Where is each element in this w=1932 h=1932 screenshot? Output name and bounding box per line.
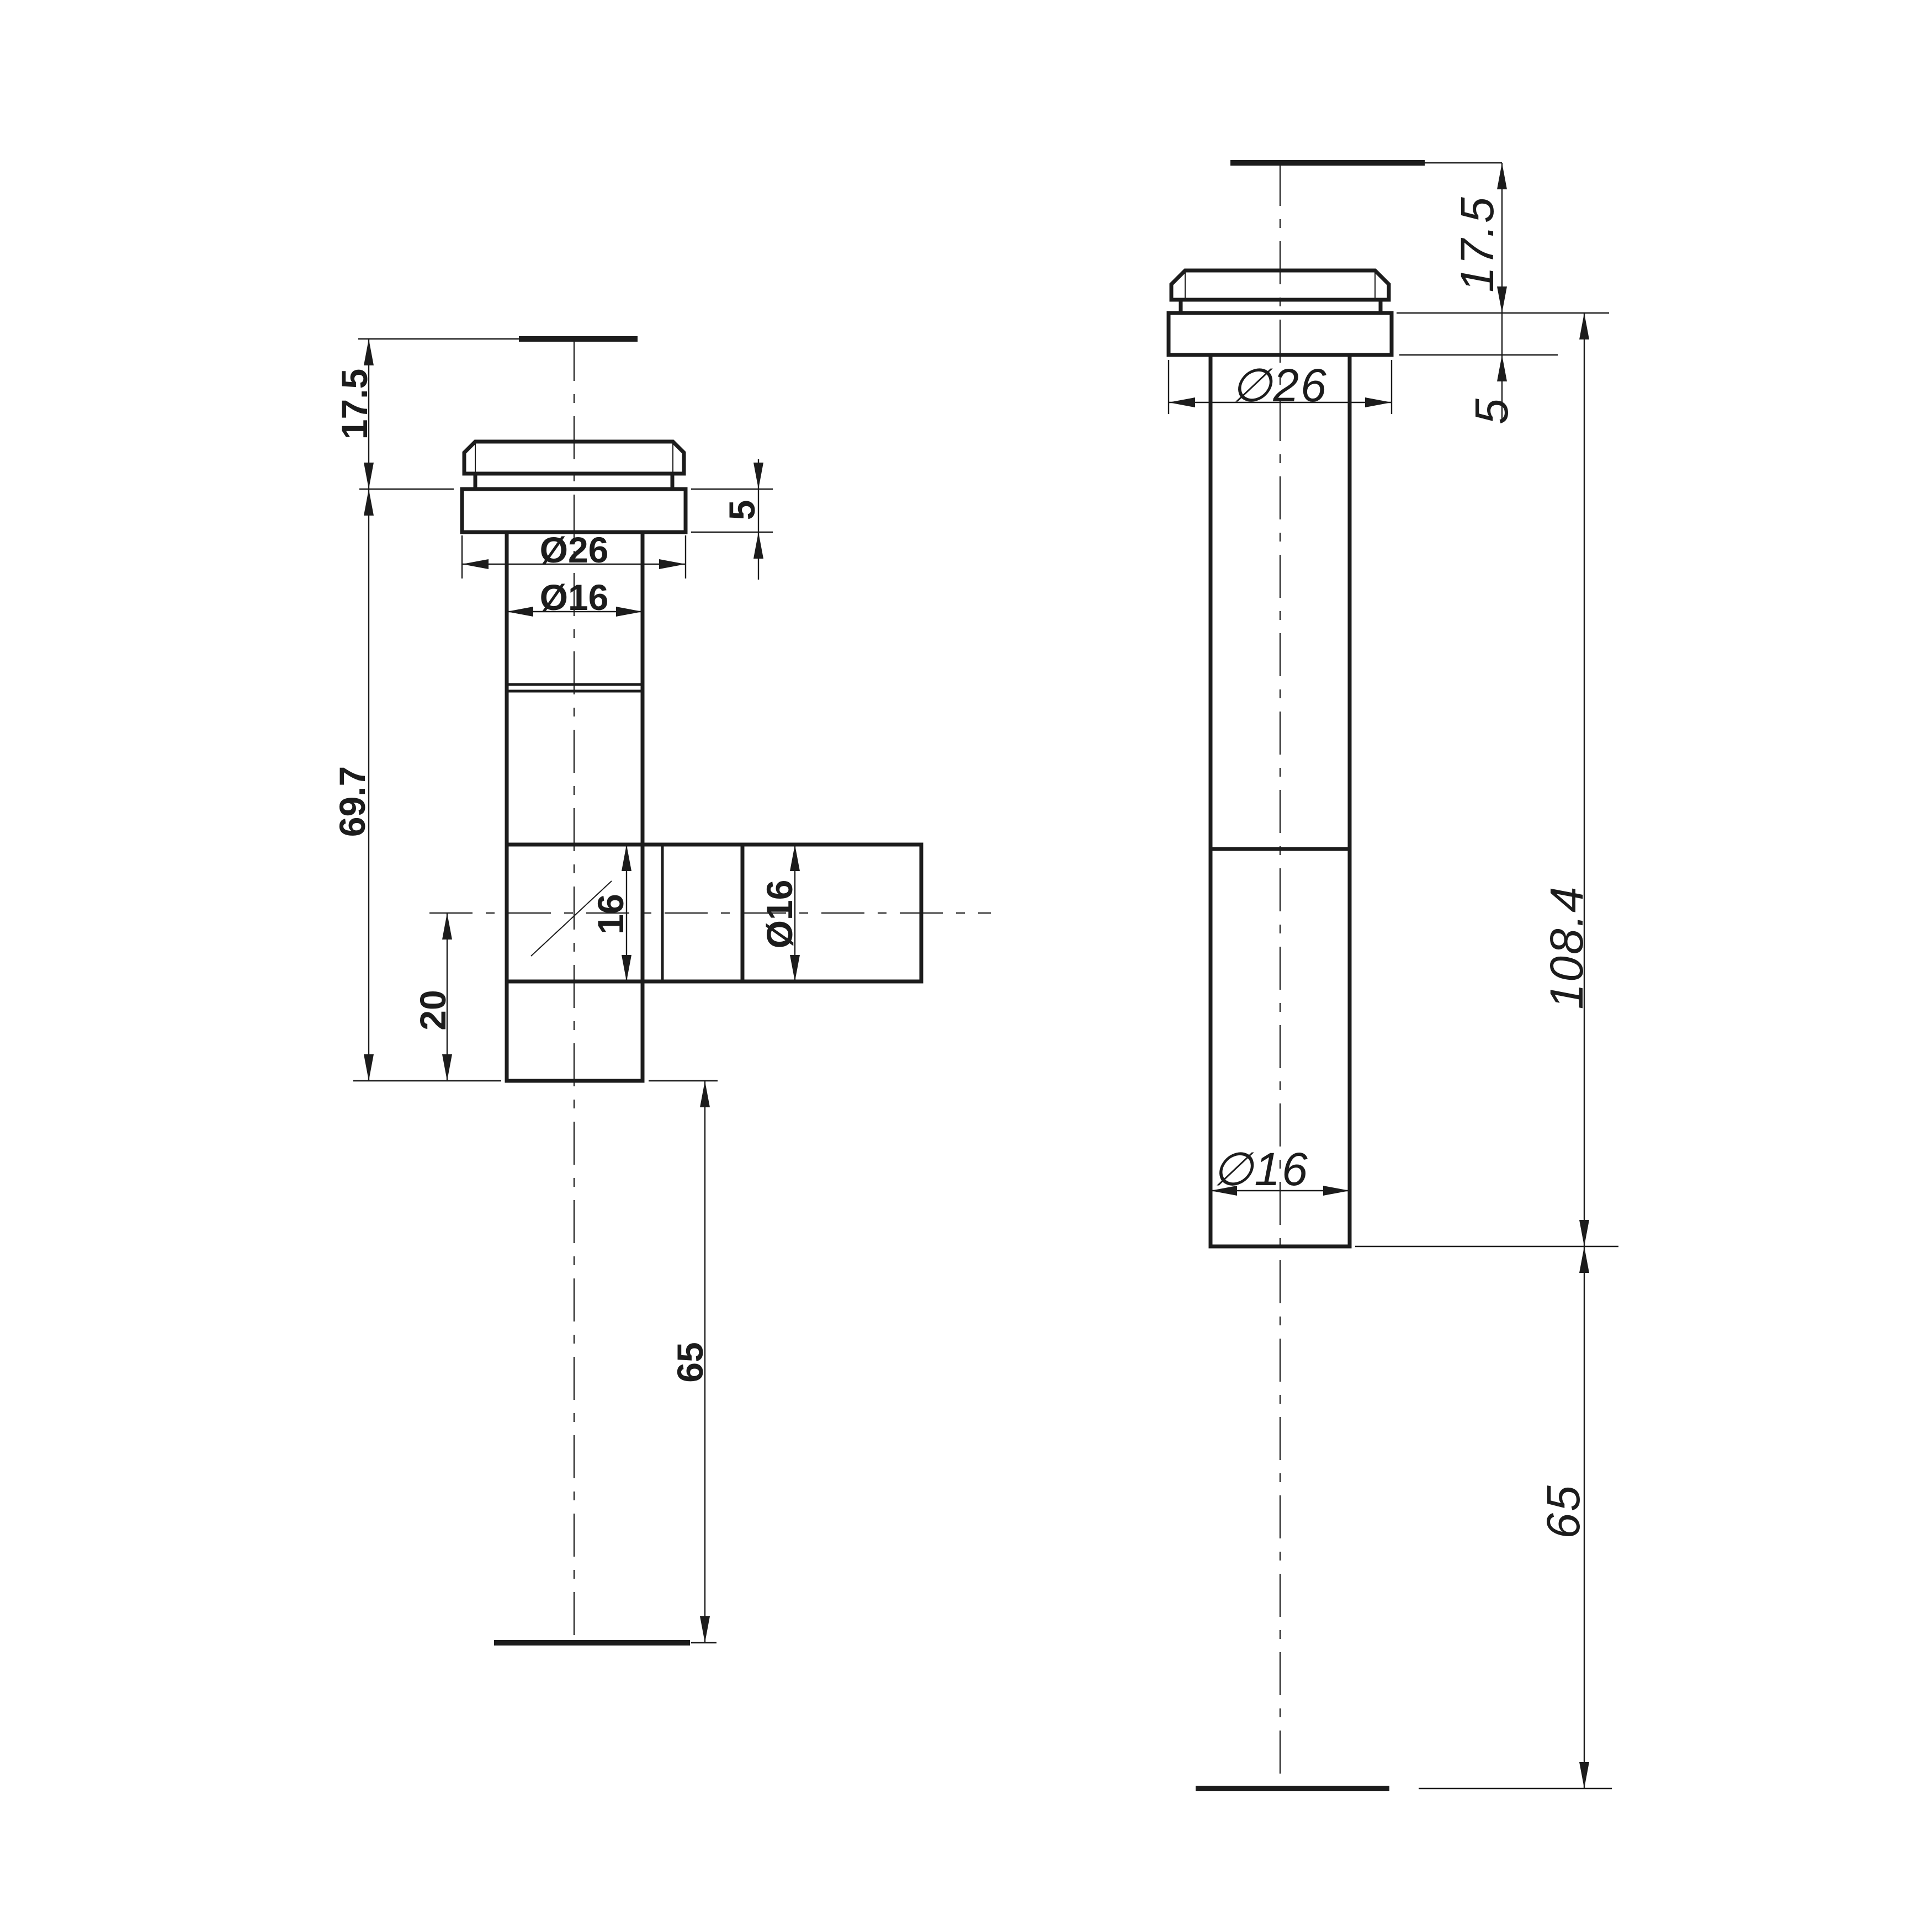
left-view-labels: 17.5 69.7 20 5 Ø26 Ø16 16 Ø16 65	[332, 369, 800, 1383]
arrowhead	[616, 607, 643, 617]
engineering-drawing: 17.5 69.7 20 5 Ø26 Ø16 16 Ø16 65	[0, 0, 1932, 1932]
arrowhead	[1497, 355, 1507, 381]
arrowhead	[753, 463, 763, 489]
left-dim-label-69-7: 69.7	[332, 766, 373, 837]
left-view: 17.5 69.7 20 5 Ø26 Ø16 16 Ø16 65	[332, 338, 991, 1643]
right-dim-label-65: 65	[1537, 1484, 1589, 1538]
arrowhead	[790, 955, 800, 981]
left-view-outline	[462, 339, 921, 1643]
arrowhead	[622, 955, 631, 981]
arrowhead	[442, 1054, 452, 1081]
arrowhead	[659, 559, 686, 569]
arrowhead	[1579, 313, 1589, 339]
arrowhead	[364, 463, 374, 489]
right-dim-label-5: 5	[1466, 397, 1517, 424]
arrowhead	[462, 559, 489, 569]
right-dim-label-dia16: ∅16	[1212, 1143, 1309, 1195]
left-dim-label-dia16-branch: Ø16	[759, 880, 800, 949]
arrowhead	[753, 532, 763, 559]
arrowhead	[1365, 397, 1392, 407]
left-dim-label-65: 65	[670, 1342, 710, 1382]
arrowhead	[790, 845, 800, 871]
arrowhead	[1169, 397, 1195, 407]
right-dim-label-17-5: 17.5	[1451, 195, 1503, 293]
arrowhead	[1579, 1220, 1589, 1246]
right-view-labels: 17.5 5 ∅26 108.4 ∅16 65	[1212, 195, 1593, 1538]
right-view: 17.5 5 ∅26 108.4 ∅16 65	[1169, 163, 1618, 1788]
arrowhead	[700, 1616, 710, 1643]
left-dim-label-20: 20	[412, 990, 453, 1030]
arrowhead	[507, 607, 533, 617]
arrowhead	[364, 1054, 374, 1081]
left-dim-label-dia26: Ø26	[540, 529, 609, 570]
arrowhead	[1579, 1246, 1589, 1273]
left-dim-label-dia16-stem: Ø16	[540, 577, 609, 618]
left-dim-label-17-5: 17.5	[334, 369, 375, 439]
right-dim-label-dia26: ∅26	[1231, 359, 1328, 411]
left-dim-label-16-branch: 16	[590, 894, 631, 934]
arrowhead	[364, 489, 374, 516]
left-dim-label-5: 5	[721, 500, 762, 521]
right-dim-label-108-4: 108.4	[1541, 885, 1593, 1009]
drawing-sheet: 17.5 69.7 20 5 Ø26 Ø16 16 Ø16 65	[0, 0, 1932, 1932]
arrowhead	[1497, 163, 1507, 189]
arrowhead	[622, 845, 631, 871]
arrowhead	[442, 913, 452, 940]
arrowhead	[364, 339, 374, 365]
arrowhead	[700, 1081, 710, 1107]
arrowhead	[1579, 1762, 1589, 1788]
arrowhead	[1323, 1186, 1350, 1196]
